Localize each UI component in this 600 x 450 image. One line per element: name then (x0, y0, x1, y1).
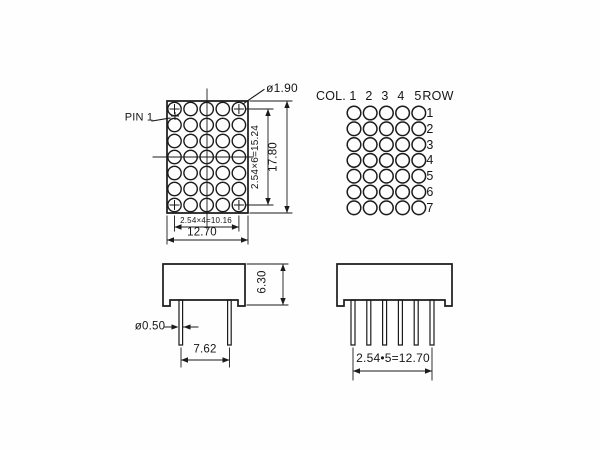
led-dot (232, 134, 245, 147)
led-dot (412, 185, 426, 199)
led-dot (216, 118, 229, 131)
led-dot (184, 102, 197, 115)
side-pin-left (179, 300, 183, 345)
led-dot (396, 122, 410, 136)
led-dot (380, 138, 394, 152)
led-dot (216, 134, 229, 147)
led-dot (396, 201, 410, 215)
led-dot (363, 169, 377, 183)
col-number-2: 2 (365, 90, 372, 103)
led-dot (396, 169, 410, 183)
side-body-outline (163, 264, 245, 306)
dot-matrix-display-drawing: PIN 1 ø1.90 2.54×6=15.24 17.80 2.54×4=10… (0, 0, 600, 450)
row-header-label: ROW (422, 90, 453, 103)
led-dot (363, 106, 377, 120)
led-dot (380, 185, 394, 199)
led-dot (216, 182, 229, 195)
pin-row-pitch-label: 2.54•5=12.70 (356, 352, 430, 364)
drawing-linework (0, 0, 600, 450)
led-dot (412, 201, 426, 215)
pin-map-dot-grid (347, 106, 425, 214)
led-dot (380, 154, 394, 168)
led-dot (232, 166, 245, 179)
row-number-5: 5 (426, 170, 433, 183)
dot-diameter-label: ø1.90 (266, 82, 298, 94)
led-dot (396, 106, 410, 120)
row-pitch-label: 2.54×6=15.24 (251, 125, 261, 189)
led-dot (363, 122, 377, 136)
led-dot (216, 166, 229, 179)
led-dot (396, 138, 410, 152)
led-dot (184, 182, 197, 195)
overall-height-label: 17.80 (268, 142, 280, 172)
row-number-3: 3 (426, 139, 433, 152)
col-header-label: COL. (316, 90, 346, 103)
led-dot (363, 154, 377, 168)
pin-spacing-label: 7.62 (193, 344, 216, 356)
side-pin-right (228, 300, 232, 345)
row-number-4: 4 (426, 154, 433, 167)
led-dot (184, 134, 197, 147)
led-dot (396, 154, 410, 168)
led-dot (184, 118, 197, 131)
led-dot (347, 201, 361, 215)
led-dot (347, 122, 361, 136)
led-dot (216, 102, 229, 115)
overall-width-label: 12.70 (187, 227, 217, 239)
led-dot (363, 185, 377, 199)
led-dot (347, 185, 361, 199)
led-dot (347, 154, 361, 168)
pin-map-view (347, 106, 425, 214)
led-dot (380, 122, 394, 136)
dot-diameter-leader-line (243, 90, 264, 105)
led-dot (412, 122, 426, 136)
led-dot (380, 106, 394, 120)
row-number-6: 6 (426, 186, 433, 199)
led-dot (168, 166, 181, 179)
col-number-1: 1 (349, 90, 356, 103)
led-dot (168, 118, 181, 131)
led-dot (232, 182, 245, 195)
led-dot (412, 154, 426, 168)
led-dot (184, 166, 197, 179)
row-number-7: 7 (426, 202, 433, 215)
led-dot (232, 118, 245, 131)
row-number-2: 2 (426, 123, 433, 136)
led-dot (347, 106, 361, 120)
pin1-label: PIN 1 (125, 113, 154, 124)
led-dot (347, 138, 361, 152)
led-dot (216, 198, 229, 211)
col-number-3: 3 (381, 90, 388, 103)
led-dot (412, 106, 426, 120)
led-dot (168, 182, 181, 195)
led-dot (380, 169, 394, 183)
col-number-4: 4 (397, 90, 404, 103)
led-dot (412, 169, 426, 183)
col-number-5: 5 (414, 90, 421, 103)
row-number-1: 1 (426, 107, 433, 120)
body-height-label: 6.30 (257, 270, 269, 293)
side-view (163, 264, 288, 367)
led-dot (363, 201, 377, 215)
led-dot (380, 201, 394, 215)
led-dot (184, 198, 197, 211)
led-dot (412, 138, 426, 152)
column-pitch-label: 2.54×4=10.16 (180, 217, 232, 225)
led-dot (168, 134, 181, 147)
pin-diameter-label: ø0.50 (135, 321, 165, 333)
front-pins (351, 300, 434, 345)
led-dot (347, 169, 361, 183)
led-dot (363, 138, 377, 152)
led-dot (396, 185, 410, 199)
